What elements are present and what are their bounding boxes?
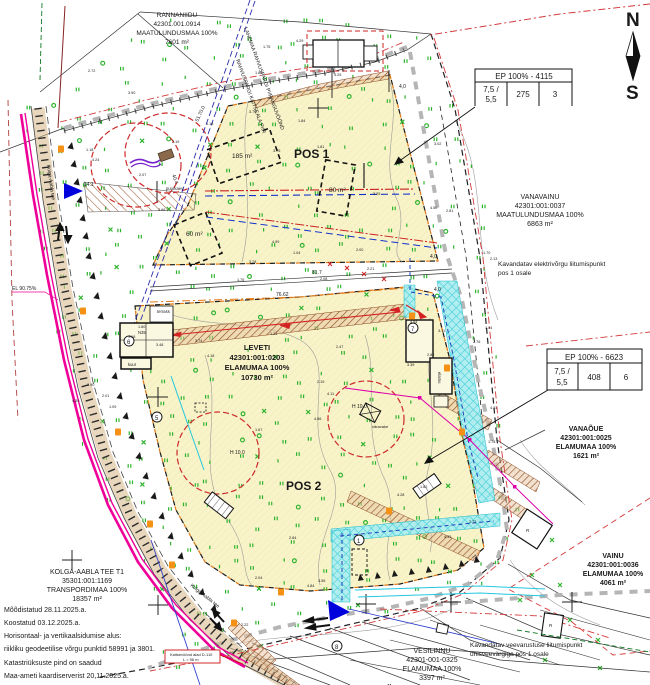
svg-text:2.04: 2.04 — [255, 576, 262, 580]
svg-text:42301.001.0914: 42301.001.0914 — [154, 21, 201, 28]
svg-text:2.81: 2.81 — [446, 209, 453, 213]
svg-text:2.19: 2.19 — [317, 380, 324, 384]
svg-text:6: 6 — [624, 373, 629, 382]
svg-text:RANNANIIDU: RANNANIIDU — [157, 12, 198, 19]
svg-text:TRANSPORDIMAA 100%: TRANSPORDIMAA 100% — [47, 587, 128, 594]
svg-text:1.76: 1.76 — [237, 278, 244, 282]
svg-text:ELAMUMAA 100%: ELAMUMAA 100% — [583, 571, 644, 578]
svg-text:80 m²: 80 m² — [329, 187, 346, 194]
svg-text:2.47: 2.47 — [336, 345, 343, 349]
svg-text:4.33: 4.33 — [444, 535, 451, 539]
svg-text:4.50: 4.50 — [430, 206, 437, 210]
svg-text:Katastriüksuste pind on saadud: Katastriüksuste pind on saadud — [4, 660, 102, 667]
svg-text:18357 m²: 18357 m² — [72, 596, 102, 603]
svg-text:4,0: 4,0 — [430, 254, 437, 260]
svg-text:ELAMUMAA 100%: ELAMUMAA 100% — [556, 444, 617, 451]
svg-text:7,5 /: 7,5 / — [554, 367, 570, 376]
svg-text:2.13: 2.13 — [490, 257, 497, 261]
svg-text:5,5: 5,5 — [485, 95, 497, 104]
svg-text:pos 1 osale: pos 1 osale — [498, 270, 532, 277]
svg-text:H 10.0: H 10.0 — [352, 404, 367, 410]
svg-text:riikliku geodeetilise võrgu pu: riikliku geodeetilise võrgu punktid 5899… — [4, 646, 155, 653]
svg-text:1.86: 1.86 — [255, 71, 262, 75]
svg-text:3.74: 3.74 — [195, 339, 202, 343]
svg-text:6863 m²: 6863 m² — [527, 221, 553, 228]
svg-text:1.70: 1.70 — [483, 251, 490, 255]
svg-text:1.18: 1.18 — [86, 148, 93, 152]
svg-text:76.62: 76.62 — [276, 292, 289, 298]
svg-text:POS 1: POS 1 — [294, 147, 330, 161]
svg-text:42301:001:0025: 42301:001:0025 — [560, 435, 611, 442]
svg-text:H 10.0: H 10.0 — [230, 450, 245, 456]
svg-text:2.19: 2.19 — [172, 140, 179, 144]
svg-text:3.75: 3.75 — [273, 149, 280, 153]
svg-text:185 m²: 185 m² — [232, 153, 253, 160]
svg-text:3.25: 3.25 — [373, 192, 380, 196]
svg-text:1.82: 1.82 — [420, 485, 427, 489]
svg-text:4.54: 4.54 — [410, 320, 417, 324]
svg-text:väravake: väravake — [372, 424, 389, 429]
svg-text:1.67: 1.67 — [255, 428, 262, 432]
svg-text:4.99: 4.99 — [272, 240, 279, 244]
svg-text:puurkaev: puurkaev — [166, 186, 184, 191]
svg-text:4.11: 4.11 — [490, 406, 497, 410]
svg-text:MAATULUNDUSMAA 100%: MAATULUNDUSMAA 100% — [496, 212, 583, 219]
svg-text:EP 100% - 4115: EP 100% - 4115 — [495, 72, 553, 81]
svg-text:4.28: 4.28 — [397, 493, 404, 497]
svg-text:1.80: 1.80 — [138, 325, 145, 329]
svg-text:4.11: 4.11 — [327, 392, 334, 396]
svg-text:VANAVAINU: VANAVAINU — [521, 194, 560, 201]
svg-text:2.01: 2.01 — [102, 394, 109, 398]
svg-text:1.04: 1.04 — [485, 326, 492, 330]
svg-text:1.18: 1.18 — [128, 335, 135, 339]
svg-text:LEVETI: LEVETI — [244, 343, 270, 352]
svg-text:7601 m²: 7601 m² — [165, 39, 190, 46]
svg-text:4.84: 4.84 — [307, 584, 314, 588]
svg-text:2.82: 2.82 — [427, 353, 434, 357]
svg-text:Maa-ameti kaardiserverist 20.1: Maa-ameti kaardiserverist 20.11.2025.a. — [4, 673, 129, 680]
svg-text:1.75: 1.75 — [263, 45, 270, 49]
svg-text:42301:001:0037: 42301:001:0037 — [515, 203, 566, 210]
svg-text:35301:001:1169: 35301:001:1169 — [62, 578, 112, 585]
svg-text:Kavandatav elektrivõrgu liitum: Kavandatav elektrivõrgu liitumispunkt — [498, 261, 605, 268]
svg-text:3.11: 3.11 — [438, 329, 445, 333]
svg-text:kuur: kuur — [128, 362, 137, 367]
svg-text:2.84: 2.84 — [289, 536, 296, 540]
svg-text:POS 2: POS 2 — [286, 479, 322, 493]
svg-text:81.7: 81.7 — [312, 270, 322, 276]
svg-text:Kavandatav veevarustuse liitum: Kavandatav veevarustuse liitumispunkt — [470, 642, 583, 649]
svg-text:3: 3 — [553, 90, 558, 99]
svg-text:42301-001-0325: 42301-001-0325 — [406, 657, 457, 664]
svg-text:1.18: 1.18 — [206, 122, 213, 126]
svg-text:3.39: 3.39 — [407, 363, 414, 367]
svg-text:VANAÕUE: VANAÕUE — [569, 424, 604, 433]
svg-text:2.07: 2.07 — [139, 173, 146, 177]
svg-text:408: 408 — [587, 373, 601, 382]
svg-text:14.1: 14.1 — [84, 182, 94, 188]
svg-text:4,0: 4,0 — [399, 84, 406, 90]
svg-text:1.21: 1.21 — [270, 332, 277, 336]
svg-text:3.48: 3.48 — [156, 343, 163, 347]
svg-text:1.04: 1.04 — [293, 251, 300, 255]
svg-text:Mõõdistatud 28.11.2025.a.: Mõõdistatud 28.11.2025.a. — [4, 607, 86, 614]
svg-text:2.90: 2.90 — [87, 383, 94, 387]
svg-text:60 m²: 60 m² — [186, 231, 203, 238]
svg-text:2.00: 2.00 — [356, 248, 363, 252]
svg-text:4.25: 4.25 — [334, 73, 341, 77]
svg-text:MAATULUNDUSMAA 100%: MAATULUNDUSMAA 100% — [136, 30, 217, 37]
svg-text:4.18: 4.18 — [207, 354, 214, 358]
svg-text:4.24: 4.24 — [92, 158, 99, 162]
svg-text:2.72: 2.72 — [469, 520, 476, 524]
svg-text:275: 275 — [516, 90, 530, 99]
svg-text:2.72: 2.72 — [88, 69, 95, 73]
svg-text:10730 m²: 10730 m² — [241, 373, 274, 382]
svg-text:2.76: 2.76 — [473, 340, 480, 344]
svg-text:L = 96 m: L = 96 m — [183, 657, 199, 662]
svg-text:3.90: 3.90 — [128, 91, 135, 95]
svg-text:4,0: 4,0 — [434, 287, 441, 293]
svg-text:42301:001:0203: 42301:001:0203 — [229, 353, 284, 362]
svg-text:Koostatud 03.12.2025.a.: Koostatud 03.12.2025.a. — [4, 620, 80, 627]
svg-text:1621 m²: 1621 m² — [573, 453, 600, 460]
svg-text:KOLGA-AABLA TEE T1: KOLGA-AABLA TEE T1 — [50, 569, 124, 576]
svg-text:5,5: 5,5 — [556, 378, 568, 387]
svg-text:3.02: 3.02 — [434, 142, 441, 146]
svg-text:4.86: 4.86 — [314, 417, 321, 421]
svg-text:VESILINNU: VESILINNU — [414, 648, 451, 655]
svg-text:EL 90.75%: EL 90.75% — [12, 286, 37, 292]
svg-text:2.21: 2.21 — [367, 267, 374, 271]
svg-text:42301:001:0036: 42301:001:0036 — [587, 562, 638, 569]
svg-text:EP 100% - 6623: EP 100% - 6623 — [565, 353, 624, 362]
svg-text:2.08: 2.08 — [320, 277, 327, 281]
svg-text:Horisontaal- ja vertikaalsidum: Horisontaal- ja vertikaalsidumise alus: — [4, 633, 122, 640]
svg-text:2.66: 2.66 — [158, 208, 165, 212]
svg-text:1.09: 1.09 — [109, 405, 116, 409]
svg-text:1.84: 1.84 — [298, 119, 305, 123]
svg-text:2.22: 2.22 — [241, 623, 248, 627]
svg-text:3.55: 3.55 — [318, 579, 325, 583]
svg-text:N: N — [626, 10, 640, 31]
svg-text:4.29: 4.29 — [72, 399, 79, 403]
svg-text:1.78: 1.78 — [488, 440, 495, 444]
svg-text:4061 m²: 4061 m² — [600, 580, 627, 587]
svg-text:4.29: 4.29 — [296, 39, 303, 43]
svg-text:N35: N35 — [138, 330, 146, 335]
svg-text:elamu: elamu — [437, 372, 442, 384]
svg-text:7,5 /: 7,5 / — [483, 85, 499, 94]
svg-text:VAINU: VAINU — [602, 553, 623, 560]
svg-text:ELAMUMAA 100%: ELAMUMAA 100% — [225, 363, 290, 372]
svg-text:3.79: 3.79 — [249, 110, 256, 114]
svg-text:terrass: terrass — [157, 309, 170, 314]
svg-text:S: S — [626, 83, 639, 104]
svg-text:3.28: 3.28 — [249, 260, 256, 264]
